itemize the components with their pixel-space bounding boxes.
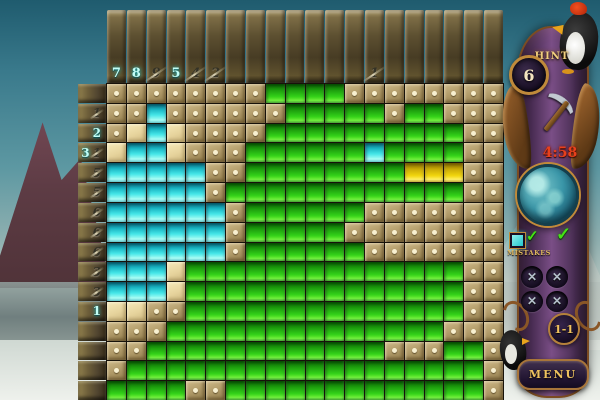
grid-cell-r12-c19[interactable]: [464, 302, 483, 321]
grid-cell-r7-c12[interactable]: [325, 203, 344, 222]
grid-cell-r9-c3[interactable]: [147, 243, 166, 262]
grid-cell-r2-c15[interactable]: [385, 104, 404, 123]
grid-cell-r4-c11[interactable]: [306, 143, 325, 162]
grid-cell-r16-c7[interactable]: [226, 381, 245, 400]
grid-cell-r12-c4[interactable]: [167, 302, 186, 321]
grid-cell-r5-c9[interactable]: [266, 163, 285, 182]
grid-cell-r6-c16[interactable]: [405, 183, 424, 202]
grid-cell-r6-c2[interactable]: [127, 183, 146, 202]
grid-cell-r4-c14[interactable]: [365, 143, 384, 162]
grid-cell-r13-c2[interactable]: [127, 322, 146, 341]
grid-cell-r3-c19[interactable]: [464, 124, 483, 143]
grid-cell-r3-c3[interactable]: [147, 124, 166, 143]
grid-cell-r13-c5[interactable]: [186, 322, 205, 341]
grid-cell-r8-c12[interactable]: [325, 223, 344, 242]
grid-cell-r8-c14[interactable]: [365, 223, 384, 242]
grid-cell-r8-c9[interactable]: [266, 223, 285, 242]
grid-cell-r11-c17[interactable]: [425, 282, 444, 301]
grid-cell-r11-c6[interactable]: [206, 282, 225, 301]
grid-cell-r2-c20[interactable]: [484, 104, 503, 123]
grid-cell-r9-c1[interactable]: [107, 243, 126, 262]
grid-cell-r10-c18[interactable]: [444, 262, 463, 281]
grid-cell-r16-c18[interactable]: [444, 381, 463, 400]
grid-cell-r11-c1[interactable]: [107, 282, 126, 301]
grid-cell-r12-c11[interactable]: [306, 302, 325, 321]
grid-cell-r16-c11[interactable]: [306, 381, 325, 400]
grid-cell-r2-c8[interactable]: [246, 104, 265, 123]
grid-cell-r12-c17[interactable]: [425, 302, 444, 321]
grid-cell-r1-c6[interactable]: [206, 84, 225, 103]
grid-cell-r15-c10[interactable]: [286, 361, 305, 380]
puzzle-grid[interactable]: [107, 84, 503, 400]
grid-cell-r3-c18[interactable]: [444, 124, 463, 143]
grid-cell-r2-c4[interactable]: [167, 104, 186, 123]
grid-cell-r1-c19[interactable]: [464, 84, 483, 103]
grid-cell-r13-c10[interactable]: [286, 322, 305, 341]
grid-cell-r6-c12[interactable]: [325, 183, 344, 202]
grid-cell-r1-c2[interactable]: [127, 84, 146, 103]
grid-cell-r14-c15[interactable]: [385, 342, 404, 361]
grid-cell-r14-c3[interactable]: [147, 342, 166, 361]
grid-cell-r16-c19[interactable]: [464, 381, 483, 400]
grid-cell-r14-c18[interactable]: [444, 342, 463, 361]
grid-cell-r2-c2[interactable]: [127, 104, 146, 123]
grid-cell-r15-c11[interactable]: [306, 361, 325, 380]
grid-cell-r2-c14[interactable]: [365, 104, 384, 123]
grid-cell-r10-c17[interactable]: [425, 262, 444, 281]
grid-cell-r9-c18[interactable]: [444, 243, 463, 262]
grid-cell-r6-c19[interactable]: [464, 183, 483, 202]
grid-cell-r7-c19[interactable]: [464, 203, 483, 222]
grid-cell-r7-c8[interactable]: [246, 203, 265, 222]
grid-cell-r12-c7[interactable]: [226, 302, 245, 321]
grid-cell-r11-c11[interactable]: [306, 282, 325, 301]
grid-cell-r14-c7[interactable]: [226, 342, 245, 361]
grid-cell-r1-c16[interactable]: [405, 84, 424, 103]
grid-cell-r10-c10[interactable]: [286, 262, 305, 281]
grid-cell-r7-c1[interactable]: [107, 203, 126, 222]
grid-cell-r12-c18[interactable]: [444, 302, 463, 321]
grid-cell-r9-c2[interactable]: [127, 243, 146, 262]
grid-cell-r1-c15[interactable]: [385, 84, 404, 103]
grid-cell-r14-c12[interactable]: [325, 342, 344, 361]
grid-cell-r3-c7[interactable]: [226, 124, 245, 143]
grid-cell-r13-c14[interactable]: [365, 322, 384, 341]
grid-cell-r9-c17[interactable]: [425, 243, 444, 262]
grid-cell-r5-c1[interactable]: [107, 163, 126, 182]
grid-cell-r3-c13[interactable]: [345, 124, 364, 143]
grid-cell-r14-c17[interactable]: [425, 342, 444, 361]
grid-cell-r16-c9[interactable]: [266, 381, 285, 400]
grid-cell-r11-c15[interactable]: [385, 282, 404, 301]
grid-cell-r10-c5[interactable]: [186, 262, 205, 281]
grid-cell-r15-c15[interactable]: [385, 361, 404, 380]
grid-cell-r12-c20[interactable]: [484, 302, 503, 321]
grid-cell-r16-c10[interactable]: [286, 381, 305, 400]
grid-cell-r4-c4[interactable]: [167, 143, 186, 162]
grid-cell-r3-c9[interactable]: [266, 124, 285, 143]
grid-cell-r13-c13[interactable]: [345, 322, 364, 341]
grid-cell-r9-c7[interactable]: [226, 243, 245, 262]
grid-cell-r6-c18[interactable]: [444, 183, 463, 202]
grid-cell-r7-c5[interactable]: [186, 203, 205, 222]
grid-cell-r7-c9[interactable]: [266, 203, 285, 222]
grid-cell-r7-c14[interactable]: [365, 203, 384, 222]
hint-count-badge[interactable]: 6: [509, 55, 549, 95]
grid-cell-r5-c16[interactable]: [405, 163, 424, 182]
grid-cell-r7-c10[interactable]: [286, 203, 305, 222]
grid-cell-r15-c13[interactable]: [345, 361, 364, 380]
grid-cell-r13-c7[interactable]: [226, 322, 245, 341]
grid-cell-r7-c4[interactable]: [167, 203, 186, 222]
grid-cell-r1-c7[interactable]: [226, 84, 245, 103]
grid-cell-r8-c5[interactable]: [186, 223, 205, 242]
grid-cell-r12-c8[interactable]: [246, 302, 265, 321]
grid-cell-r2-c16[interactable]: [405, 104, 424, 123]
grid-cell-r6-c8[interactable]: [246, 183, 265, 202]
grid-cell-r11-c19[interactable]: [464, 282, 483, 301]
grid-cell-r16-c13[interactable]: [345, 381, 364, 400]
grid-cell-r3-c12[interactable]: [325, 124, 344, 143]
grid-cell-r4-c18[interactable]: [444, 143, 463, 162]
grid-cell-r9-c4[interactable]: [167, 243, 186, 262]
grid-cell-r16-c15[interactable]: [385, 381, 404, 400]
grid-cell-r11-c4[interactable]: [167, 282, 186, 301]
grid-cell-r7-c2[interactable]: [127, 203, 146, 222]
grid-cell-r11-c2[interactable]: [127, 282, 146, 301]
grid-cell-r8-c1[interactable]: [107, 223, 126, 242]
grid-cell-r11-c12[interactable]: [325, 282, 344, 301]
grid-cell-r4-c3[interactable]: [147, 143, 166, 162]
grid-cell-r14-c8[interactable]: [246, 342, 265, 361]
grid-cell-r4-c5[interactable]: [186, 143, 205, 162]
grid-cell-r1-c1[interactable]: [107, 84, 126, 103]
grid-cell-r2-c10[interactable]: [286, 104, 305, 123]
grid-cell-r1-c20[interactable]: [484, 84, 503, 103]
grid-cell-r9-c19[interactable]: [464, 243, 483, 262]
grid-cell-r10-c14[interactable]: [365, 262, 384, 281]
grid-cell-r15-c8[interactable]: [246, 361, 265, 380]
grid-cell-r13-c16[interactable]: [405, 322, 424, 341]
globe-map-icon[interactable]: [517, 164, 579, 226]
grid-cell-r8-c6[interactable]: [206, 223, 225, 242]
grid-cell-r3-c14[interactable]: [365, 124, 384, 143]
grid-cell-r16-c20[interactable]: [484, 381, 503, 400]
grid-cell-r15-c17[interactable]: [425, 361, 444, 380]
grid-cell-r5-c20[interactable]: [484, 163, 503, 182]
grid-cell-r16-c2[interactable]: [127, 381, 146, 400]
grid-cell-r6-c10[interactable]: [286, 183, 305, 202]
grid-cell-r2-c9[interactable]: [266, 104, 285, 123]
grid-cell-r2-c18[interactable]: [444, 104, 463, 123]
grid-cell-r12-c10[interactable]: [286, 302, 305, 321]
grid-cell-r13-c6[interactable]: [206, 322, 225, 341]
grid-cell-r1-c3[interactable]: [147, 84, 166, 103]
grid-cell-r12-c5[interactable]: [186, 302, 205, 321]
grid-cell-r4-c6[interactable]: [206, 143, 225, 162]
grid-cell-r5-c10[interactable]: [286, 163, 305, 182]
grid-cell-r2-c5[interactable]: [186, 104, 205, 123]
grid-cell-r6-c3[interactable]: [147, 183, 166, 202]
grid-cell-r7-c17[interactable]: [425, 203, 444, 222]
grid-cell-r15-c6[interactable]: [206, 361, 225, 380]
grid-cell-r6-c14[interactable]: [365, 183, 384, 202]
grid-cell-r1-c5[interactable]: [186, 84, 205, 103]
grid-cell-r5-c7[interactable]: [226, 163, 245, 182]
grid-cell-r12-c15[interactable]: [385, 302, 404, 321]
grid-cell-r10-c7[interactable]: [226, 262, 245, 281]
grid-cell-r5-c13[interactable]: [345, 163, 364, 182]
grid-cell-r15-c20[interactable]: [484, 361, 503, 380]
grid-cell-r10-c15[interactable]: [385, 262, 404, 281]
grid-cell-r3-c1[interactable]: [107, 124, 126, 143]
grid-cell-r16-c14[interactable]: [365, 381, 384, 400]
grid-cell-r15-c7[interactable]: [226, 361, 245, 380]
grid-cell-r10-c11[interactable]: [306, 262, 325, 281]
grid-cell-r12-c9[interactable]: [266, 302, 285, 321]
grid-cell-r12-c2[interactable]: [127, 302, 146, 321]
grid-cell-r4-c9[interactable]: [266, 143, 285, 162]
grid-cell-r9-c6[interactable]: [206, 243, 225, 262]
grid-cell-r8-c3[interactable]: [147, 223, 166, 242]
grid-cell-r11-c14[interactable]: [365, 282, 384, 301]
grid-cell-r10-c1[interactable]: [107, 262, 126, 281]
grid-cell-r16-c12[interactable]: [325, 381, 344, 400]
grid-cell-r7-c3[interactable]: [147, 203, 166, 222]
grid-cell-r13-c8[interactable]: [246, 322, 265, 341]
grid-cell-r4-c1[interactable]: [107, 143, 126, 162]
grid-cell-r16-c5[interactable]: [186, 381, 205, 400]
grid-cell-r2-c11[interactable]: [306, 104, 325, 123]
grid-cell-r7-c7[interactable]: [226, 203, 245, 222]
grid-cell-r10-c4[interactable]: [167, 262, 186, 281]
grid-cell-r5-c18[interactable]: [444, 163, 463, 182]
grid-cell-r10-c13[interactable]: [345, 262, 364, 281]
grid-cell-r6-c6[interactable]: [206, 183, 225, 202]
grid-cell-r2-c1[interactable]: [107, 104, 126, 123]
grid-cell-r13-c12[interactable]: [325, 322, 344, 341]
grid-cell-r12-c14[interactable]: [365, 302, 384, 321]
grid-cell-r9-c9[interactable]: [266, 243, 285, 262]
grid-cell-r13-c18[interactable]: [444, 322, 463, 341]
grid-cell-r9-c11[interactable]: [306, 243, 325, 262]
grid-cell-r14-c13[interactable]: [345, 342, 364, 361]
grid-cell-r8-c18[interactable]: [444, 223, 463, 242]
grid-cell-r5-c4[interactable]: [167, 163, 186, 182]
grid-cell-r8-c20[interactable]: [484, 223, 503, 242]
grid-cell-r3-c17[interactable]: [425, 124, 444, 143]
grid-cell-r16-c1[interactable]: [107, 381, 126, 400]
grid-cell-r1-c14[interactable]: [365, 84, 384, 103]
grid-cell-r6-c4[interactable]: [167, 183, 186, 202]
grid-cell-r11-c18[interactable]: [444, 282, 463, 301]
grid-cell-r15-c4[interactable]: [167, 361, 186, 380]
grid-cell-r3-c8[interactable]: [246, 124, 265, 143]
grid-cell-r11-c13[interactable]: [345, 282, 364, 301]
grid-cell-r13-c11[interactable]: [306, 322, 325, 341]
grid-cell-r13-c1[interactable]: [107, 322, 126, 341]
grid-cell-r7-c15[interactable]: [385, 203, 404, 222]
grid-cell-r8-c15[interactable]: [385, 223, 404, 242]
grid-cell-r15-c1[interactable]: [107, 361, 126, 380]
grid-cell-r13-c3[interactable]: [147, 322, 166, 341]
grid-cell-r9-c15[interactable]: [385, 243, 404, 262]
grid-cell-r15-c9[interactable]: [266, 361, 285, 380]
grid-cell-r3-c16[interactable]: [405, 124, 424, 143]
grid-cell-r9-c14[interactable]: [365, 243, 384, 262]
grid-cell-r4-c16[interactable]: [405, 143, 424, 162]
grid-cell-r14-c4[interactable]: [167, 342, 186, 361]
grid-cell-r16-c16[interactable]: [405, 381, 424, 400]
grid-cell-r1-c4[interactable]: [167, 84, 186, 103]
grid-cell-r2-c12[interactable]: [325, 104, 344, 123]
grid-cell-r11-c20[interactable]: [484, 282, 503, 301]
grid-cell-r4-c13[interactable]: [345, 143, 364, 162]
grid-cell-r7-c20[interactable]: [484, 203, 503, 222]
grid-cell-r13-c19[interactable]: [464, 322, 483, 341]
grid-cell-r6-c1[interactable]: [107, 183, 126, 202]
grid-cell-r15-c2[interactable]: [127, 361, 146, 380]
grid-cell-r16-c8[interactable]: [246, 381, 265, 400]
grid-cell-r15-c18[interactable]: [444, 361, 463, 380]
grid-cell-r4-c8[interactable]: [246, 143, 265, 162]
grid-cell-r9-c13[interactable]: [345, 243, 364, 262]
grid-cell-r3-c10[interactable]: [286, 124, 305, 143]
grid-cell-r6-c11[interactable]: [306, 183, 325, 202]
grid-cell-r4-c17[interactable]: [425, 143, 444, 162]
grid-cell-r7-c18[interactable]: [444, 203, 463, 222]
grid-cell-r2-c13[interactable]: [345, 104, 364, 123]
grid-cell-r10-c9[interactable]: [266, 262, 285, 281]
grid-cell-r14-c6[interactable]: [206, 342, 225, 361]
grid-cell-r16-c3[interactable]: [147, 381, 166, 400]
grid-cell-r2-c6[interactable]: [206, 104, 225, 123]
grid-cell-r1-c9[interactable]: [266, 84, 285, 103]
grid-cell-r8-c11[interactable]: [306, 223, 325, 242]
grid-cell-r9-c12[interactable]: [325, 243, 344, 262]
grid-cell-r11-c5[interactable]: [186, 282, 205, 301]
grid-cell-r4-c2[interactable]: [127, 143, 146, 162]
grid-cell-r5-c15[interactable]: [385, 163, 404, 182]
grid-cell-r8-c19[interactable]: [464, 223, 483, 242]
grid-cell-r11-c7[interactable]: [226, 282, 245, 301]
grid-cell-r9-c20[interactable]: [484, 243, 503, 262]
grid-cell-r13-c9[interactable]: [266, 322, 285, 341]
grid-cell-r14-c9[interactable]: [266, 342, 285, 361]
grid-cell-r2-c19[interactable]: [464, 104, 483, 123]
grid-cell-r7-c11[interactable]: [306, 203, 325, 222]
grid-cell-r5-c6[interactable]: [206, 163, 225, 182]
grid-cell-r5-c5[interactable]: [186, 163, 205, 182]
grid-cell-r3-c4[interactable]: [167, 124, 186, 143]
grid-cell-r15-c5[interactable]: [186, 361, 205, 380]
grid-cell-r15-c16[interactable]: [405, 361, 424, 380]
grid-cell-r9-c8[interactable]: [246, 243, 265, 262]
grid-cell-r12-c6[interactable]: [206, 302, 225, 321]
grid-cell-r5-c11[interactable]: [306, 163, 325, 182]
grid-cell-r1-c17[interactable]: [425, 84, 444, 103]
grid-cell-r1-c10[interactable]: [286, 84, 305, 103]
grid-cell-r8-c10[interactable]: [286, 223, 305, 242]
grid-cell-r4-c12[interactable]: [325, 143, 344, 162]
grid-cell-r11-c10[interactable]: [286, 282, 305, 301]
grid-cell-r6-c5[interactable]: [186, 183, 205, 202]
grid-cell-r12-c12[interactable]: [325, 302, 344, 321]
grid-cell-r14-c16[interactable]: [405, 342, 424, 361]
grid-cell-r16-c17[interactable]: [425, 381, 444, 400]
grid-cell-r8-c13[interactable]: [345, 223, 364, 242]
grid-cell-r14-c10[interactable]: [286, 342, 305, 361]
grid-cell-r5-c8[interactable]: [246, 163, 265, 182]
grid-cell-r4-c19[interactable]: [464, 143, 483, 162]
grid-cell-r5-c12[interactable]: [325, 163, 344, 182]
grid-cell-r16-c6[interactable]: [206, 381, 225, 400]
grid-cell-r12-c1[interactable]: [107, 302, 126, 321]
grid-cell-r8-c16[interactable]: [405, 223, 424, 242]
grid-cell-r1-c11[interactable]: [306, 84, 325, 103]
grid-cell-r13-c4[interactable]: [167, 322, 186, 341]
grid-cell-r4-c7[interactable]: [226, 143, 245, 162]
grid-cell-r3-c2[interactable]: [127, 124, 146, 143]
grid-cell-r10-c2[interactable]: [127, 262, 146, 281]
grid-cell-r3-c6[interactable]: [206, 124, 225, 143]
grid-cell-r2-c3[interactable]: [147, 104, 166, 123]
grid-cell-r1-c18[interactable]: [444, 84, 463, 103]
grid-cell-r4-c10[interactable]: [286, 143, 305, 162]
grid-cell-r11-c16[interactable]: [405, 282, 424, 301]
grid-cell-r6-c7[interactable]: [226, 183, 245, 202]
grid-cell-r4-c20[interactable]: [484, 143, 503, 162]
grid-cell-r2-c17[interactable]: [425, 104, 444, 123]
grid-cell-r10-c6[interactable]: [206, 262, 225, 281]
grid-cell-r8-c2[interactable]: [127, 223, 146, 242]
grid-cell-r10-c8[interactable]: [246, 262, 265, 281]
grid-cell-r15-c14[interactable]: [365, 361, 384, 380]
grid-cell-r14-c1[interactable]: [107, 342, 126, 361]
grid-cell-r11-c3[interactable]: [147, 282, 166, 301]
grid-cell-r10-c12[interactable]: [325, 262, 344, 281]
grid-cell-r8-c17[interactable]: [425, 223, 444, 242]
grid-cell-r12-c13[interactable]: [345, 302, 364, 321]
menu-button[interactable]: MENU: [517, 359, 589, 390]
grid-cell-r6-c9[interactable]: [266, 183, 285, 202]
grid-cell-r4-c15[interactable]: [385, 143, 404, 162]
grid-cell-r14-c14[interactable]: [365, 342, 384, 361]
grid-cell-r9-c10[interactable]: [286, 243, 305, 262]
grid-cell-r2-c7[interactable]: [226, 104, 245, 123]
grid-cell-r15-c19[interactable]: [464, 361, 483, 380]
grid-cell-r14-c5[interactable]: [186, 342, 205, 361]
grid-cell-r5-c19[interactable]: [464, 163, 483, 182]
grid-cell-r15-c3[interactable]: [147, 361, 166, 380]
grid-cell-r6-c15[interactable]: [385, 183, 404, 202]
grid-cell-r3-c20[interactable]: [484, 124, 503, 143]
grid-cell-r10-c19[interactable]: [464, 262, 483, 281]
grid-cell-r1-c12[interactable]: [325, 84, 344, 103]
grid-cell-r10-c16[interactable]: [405, 262, 424, 281]
grid-cell-r13-c20[interactable]: [484, 322, 503, 341]
grid-cell-r13-c17[interactable]: [425, 322, 444, 341]
grid-cell-r5-c14[interactable]: [365, 163, 384, 182]
grid-cell-r6-c17[interactable]: [425, 183, 444, 202]
grid-cell-r15-c12[interactable]: [325, 361, 344, 380]
grid-cell-r9-c5[interactable]: [186, 243, 205, 262]
grid-cell-r3-c15[interactable]: [385, 124, 404, 143]
grid-cell-r7-c13[interactable]: [345, 203, 364, 222]
grid-cell-r7-c6[interactable]: [206, 203, 225, 222]
grid-cell-r12-c16[interactable]: [405, 302, 424, 321]
grid-cell-r14-c2[interactable]: [127, 342, 146, 361]
